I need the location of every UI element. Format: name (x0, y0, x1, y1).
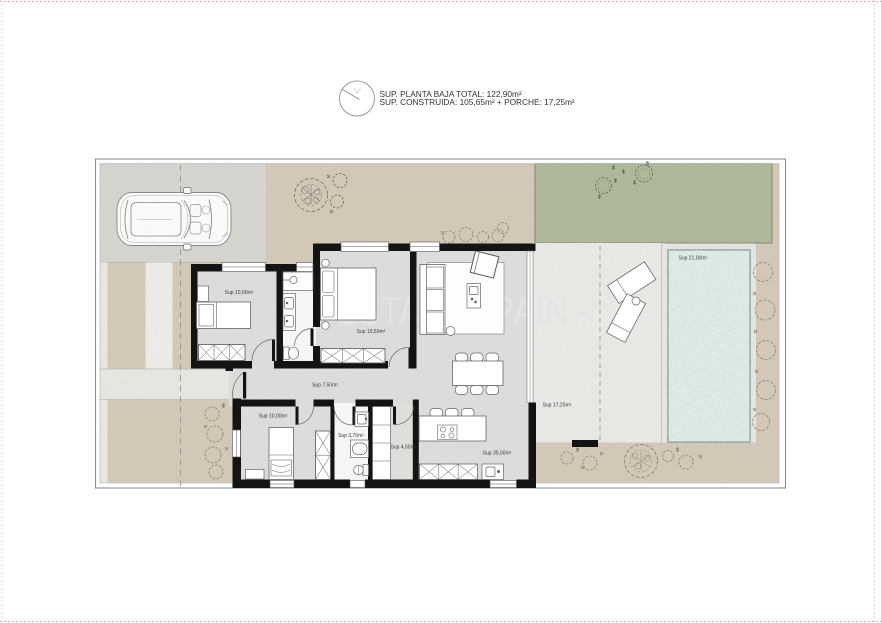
svg-text:Sup 35,00m²: Sup 35,00m² (483, 451, 512, 457)
svg-text:Sup 17,25m²: Sup 17,25m² (543, 403, 572, 409)
svg-text:Sup 7,50m²: Sup 7,50m² (312, 383, 338, 389)
svg-text:Sup 10,00m²: Sup 10,00m² (225, 290, 254, 296)
svg-text:Sup 10,00m²: Sup 10,00m² (259, 414, 288, 420)
svg-text:Sup 4,50m²: Sup 4,50m² (391, 445, 417, 451)
svg-text:SUP. CONSTRUIDA: 105,65m² + PO: SUP. CONSTRUIDA: 105,65m² + PORCHE: 17,2… (380, 97, 575, 107)
svg-text:Sup 19,50m²: Sup 19,50m² (357, 329, 386, 335)
svg-text:Sup 3,70m²: Sup 3,70m² (338, 433, 364, 439)
